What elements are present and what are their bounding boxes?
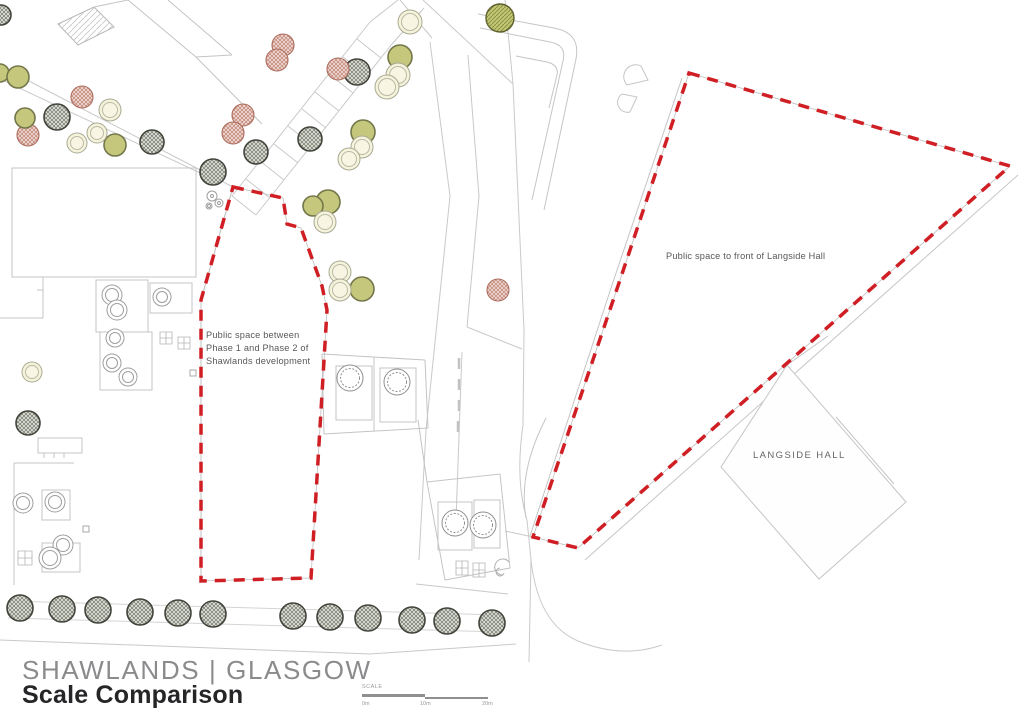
utility-box [190,370,196,376]
annotation-line: Public space between [206,329,310,342]
site-plan-drawing [0,0,1024,723]
scale-bar-label: SCALE [362,684,383,690]
tree-symbol-olive [15,108,35,128]
annotation-line: Phase 1 and Phase 2 of [206,342,310,355]
road-line [416,584,508,594]
right-map-buildings [478,14,1018,579]
tree-symbol-dark [200,159,226,185]
tree-symbol-dark [44,104,70,130]
road-line [505,0,524,425]
scale-bar-segment-1 [362,694,425,697]
scale-comparison-page: Public space between Phase 1 and Phase 2… [0,0,1024,723]
monument-d-shape [624,65,648,85]
tree-symbol-inner [333,283,348,298]
road-line [531,560,662,651]
tree-symbol-inner [318,215,333,230]
tree-symbol-inner [379,79,396,96]
title-block: SHAWLANDS | GLASGOW Scale Comparison [22,657,372,708]
page-title-location: SHAWLANDS | GLASGOW [22,657,372,683]
annotation-line: Public space to front of Langside Hall [666,250,825,263]
tree-symbol-dark [298,127,322,151]
tree-symbol-dark [200,601,226,627]
tree-symbol-dark [7,595,33,621]
tree-symbol-inner [333,265,348,280]
annotation-line: Shawlands development [206,355,310,368]
window-grid [456,561,485,577]
building-line [0,277,43,318]
tree-symbol-dark [317,604,343,630]
left-map-roads [0,0,662,662]
monument-d-shape [618,94,637,112]
small-building [38,438,82,453]
tree-symbol-olive [104,134,126,156]
road-line [456,352,462,520]
tree-symbol-dark [0,5,11,25]
tree-symbol-olive [350,277,374,301]
tree-symbol-inner [91,127,104,140]
tree-symbol-dark [434,608,460,634]
shawlands-public-space-boundary [201,187,327,581]
tree-symbol-open [207,191,217,201]
tree-symbol-rust [487,279,509,301]
tree-symbol-rust [266,49,288,71]
tree-symbol-rust [71,86,93,108]
tree-symbol-dark [479,610,505,636]
shawlands-public-space-boundary-underline [201,187,327,581]
corner-building [478,14,577,210]
tree-symbol-dark [165,600,191,626]
langside-hall-label: LANGSIDE HALL [753,450,846,461]
road-line [0,640,516,654]
parking-dashes [458,358,459,432]
tree-symbol-inner [71,137,84,150]
tree-row-guides [8,601,500,632]
tree-symbol-open [215,199,223,207]
tree-symbol-dark [355,605,381,631]
tree-symbol-dark [399,607,425,633]
tree-symbol-open [206,203,212,209]
scale-tick-0m: 0m [362,701,370,707]
tree-symbol-dark [85,597,111,623]
tree-symbol-open [119,368,137,386]
tree-symbol-open [153,288,171,306]
tree-symbol-dark [244,140,268,164]
scale-tick-10m: 10m [420,701,431,707]
window-grid [18,551,32,565]
tree-symbol-open [103,354,121,372]
utility-box [83,526,89,532]
garden-curl [495,559,509,576]
tree-symbol-rust [327,58,349,80]
road-line [530,78,682,536]
tree-symbol-inner [26,366,39,379]
tree-symbol-dark [16,411,40,435]
tree-symbol-olive [7,66,29,88]
tree-symbol-oliveHatch [486,4,514,32]
shawlands-space-annotation: Public space between Phase 1 and Phase 2… [206,329,310,368]
tree-symbol-dark [280,603,306,629]
page-title-project: Scale Comparison [22,683,372,708]
road-line [419,42,450,560]
scale-bar-segment-2 [425,697,488,699]
scale-tick-20m: 20m [482,701,493,707]
tree-symbol-dark [140,130,164,154]
tree-symbol-inner [402,14,419,31]
tree-symbol-rust [222,122,244,144]
langside-space-annotation: Public space to front of Langside Hall [666,250,825,263]
tree-symbol-dark [127,599,153,625]
tree-symbol-dark [49,596,75,622]
building-block [12,168,196,277]
tree-symbol-open [106,329,124,347]
tree-symbol-inner [103,103,118,118]
window-grid [160,332,190,349]
tree-symbol-inner [342,152,357,167]
hatched-building [58,7,114,45]
scale-bar: SCALE 0m 10m 20m [360,684,492,710]
